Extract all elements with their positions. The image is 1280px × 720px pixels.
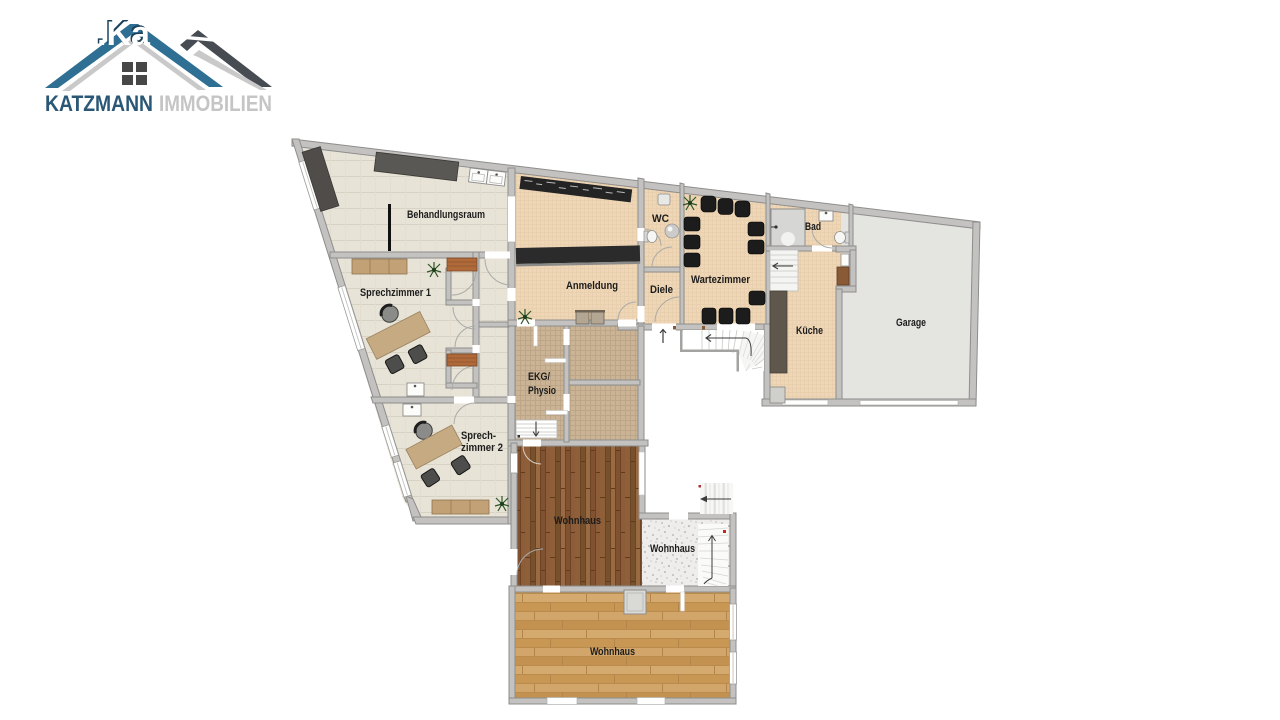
svg-text:Sprechzimmer 1: Sprechzimmer 1 — [360, 287, 431, 299]
svg-text:IMMOBILIEN: IMMOBILIEN — [159, 91, 272, 116]
svg-text:Garage: Garage — [896, 317, 926, 329]
svg-text:Wohnhaus: Wohnhaus — [554, 515, 601, 527]
svg-text:Anmeldung: Anmeldung — [566, 280, 618, 292]
svg-text:Küche: Küche — [796, 325, 823, 337]
svg-text:Wohnhaus: Wohnhaus — [650, 543, 695, 555]
svg-text:EKG/: EKG/ — [528, 371, 550, 383]
svg-text:Wartezimmer: Wartezimmer — [691, 274, 751, 286]
svg-text:Behandlungsraum: Behandlungsraum — [407, 209, 485, 221]
svg-text:zimmer 2: zimmer 2 — [461, 442, 503, 454]
svg-text:Bad: Bad — [805, 221, 821, 233]
svg-text:WC: WC — [652, 213, 669, 225]
svg-text:KATZMANN: KATZMANN — [45, 91, 153, 116]
svg-text:.Ka: .Ka — [97, 15, 151, 53]
svg-text:Physio: Physio — [528, 385, 556, 397]
svg-text:Sprech-: Sprech- — [461, 430, 496, 442]
svg-text:Diele: Diele — [650, 284, 673, 296]
svg-text:Wohnhaus: Wohnhaus — [590, 646, 635, 658]
